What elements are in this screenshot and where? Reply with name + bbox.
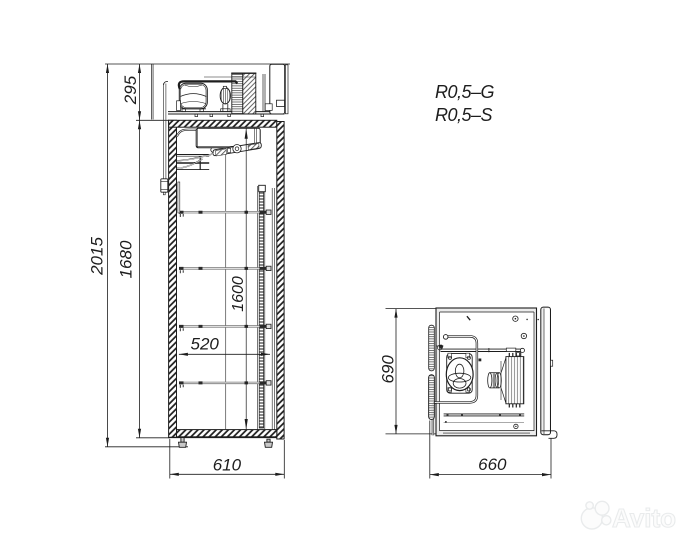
svg-text:2015: 2015 (88, 237, 107, 276)
svg-text:690: 690 (378, 355, 397, 384)
svg-text:520: 520 (191, 335, 220, 354)
svg-text:R0,5–G: R0,5–G (435, 82, 495, 102)
svg-text:1600: 1600 (230, 276, 247, 312)
svg-text:660: 660 (478, 455, 507, 474)
svg-text:1680: 1680 (117, 240, 136, 278)
svg-text:295: 295 (121, 75, 140, 105)
svg-text:610: 610 (213, 456, 242, 475)
svg-text:Avito: Avito (612, 503, 676, 533)
svg-text:R0,5–S: R0,5–S (435, 105, 493, 125)
